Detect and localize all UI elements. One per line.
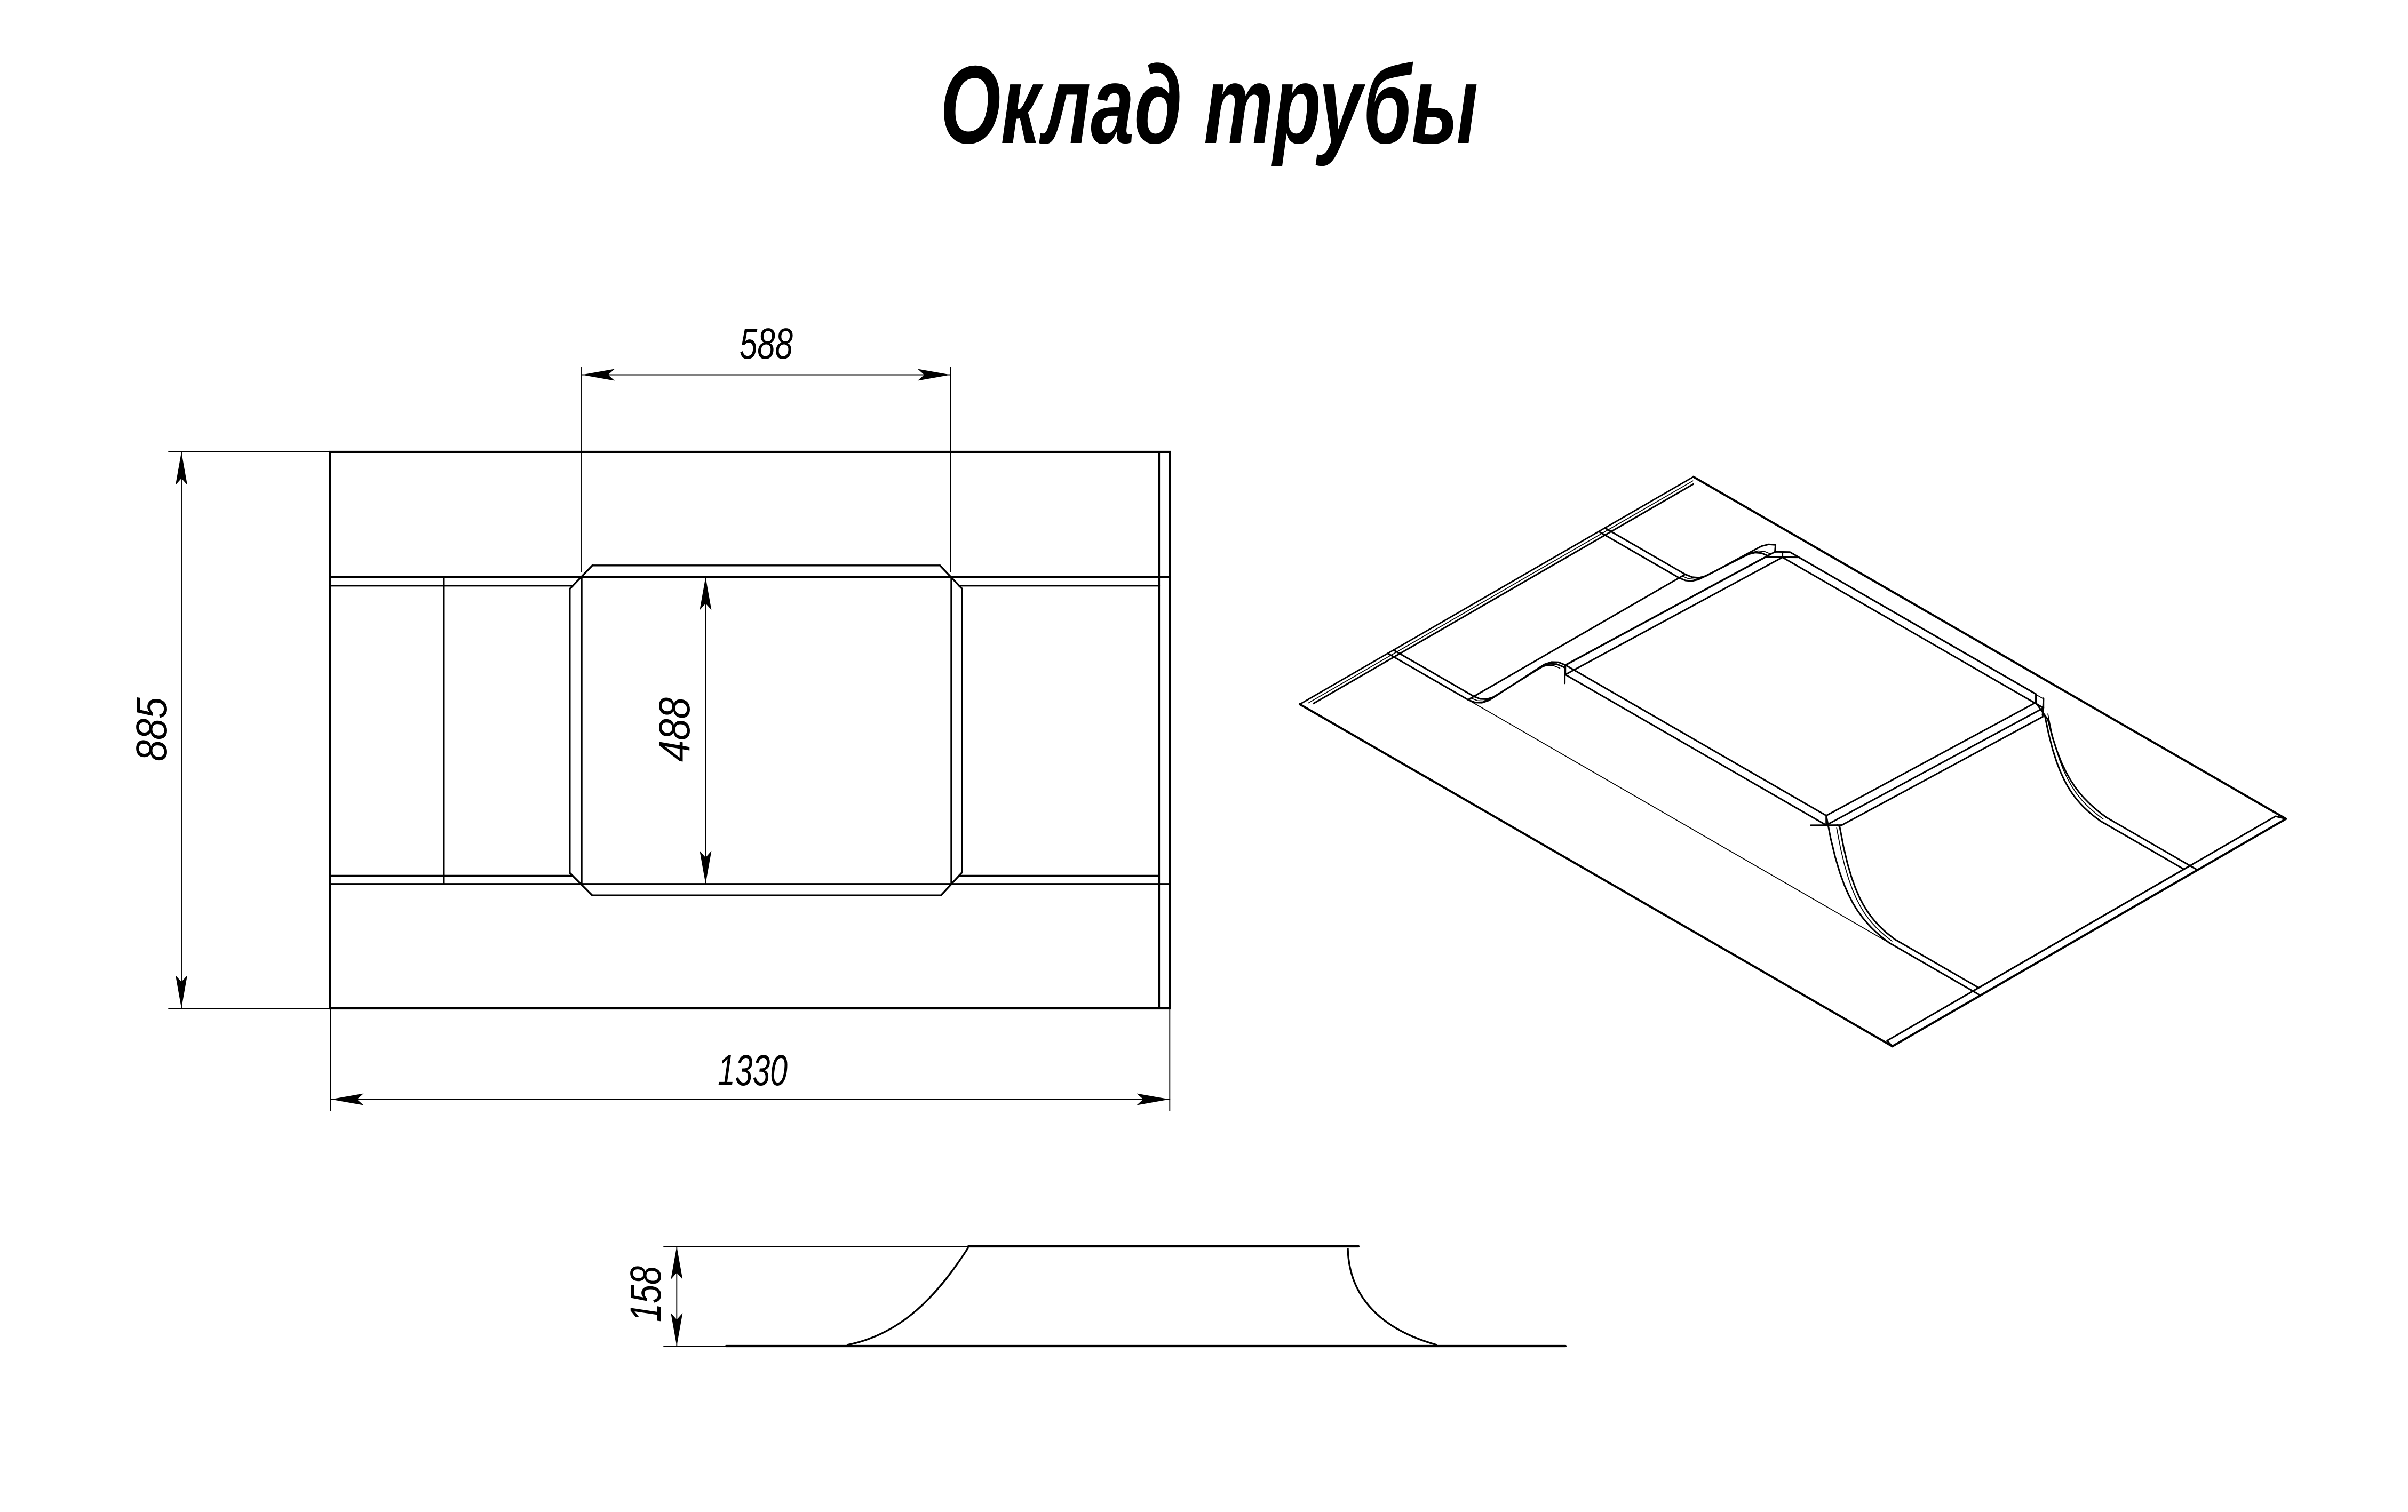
svg-text:488: 488 [650, 697, 699, 762]
svg-text:158: 158 [622, 1266, 670, 1322]
svg-text:Оклад трубы: Оклад трубы [940, 43, 1478, 167]
svg-text:1330: 1330 [718, 1046, 788, 1095]
svg-text:588: 588 [740, 320, 793, 368]
svg-text:885: 885 [128, 697, 176, 761]
